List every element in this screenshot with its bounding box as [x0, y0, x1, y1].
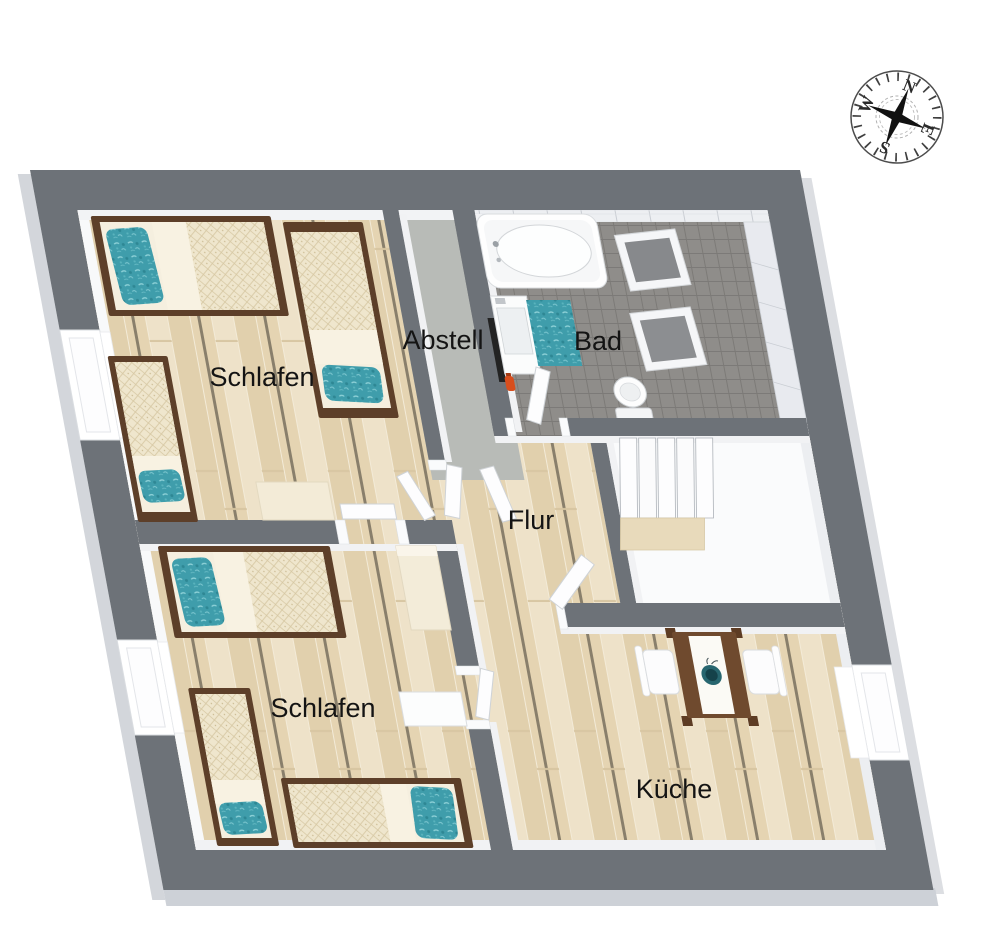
wall-bevel-bottom — [163, 888, 938, 906]
floor-plan-canvas: Schlafen Abstell Bad Flur Schlafen Küche… — [0, 0, 1000, 929]
pillow — [218, 801, 269, 835]
plan-skew-group — [17, 170, 946, 906]
room-label-schlafen-1: Schlafen — [209, 362, 314, 392]
wall-bedrooms-1 — [135, 520, 339, 544]
bed — [91, 216, 290, 316]
bed — [281, 778, 474, 848]
door-leaf — [340, 504, 397, 519]
floor-plan-drawing: Schlafen Abstell Bad Flur Schlafen Küche… — [0, 0, 1000, 929]
pillow — [321, 365, 384, 404]
pillow — [137, 469, 186, 503]
bedroom1-table — [256, 482, 335, 520]
compass-rose-icon: N E S W — [851, 71, 943, 163]
room-label-kueche: Küche — [636, 774, 713, 804]
room-label-abstell: Abstell — [402, 325, 483, 355]
bathtub — [475, 214, 609, 288]
stair-landing — [614, 518, 710, 550]
room-label-flur: Flur — [508, 505, 555, 535]
door-leaf — [444, 464, 462, 518]
pillow — [410, 786, 459, 840]
room-label-bad: Bad — [574, 326, 622, 356]
wall-flur-kueche — [555, 603, 844, 627]
room-label-schlafen-2: Schlafen — [270, 693, 375, 723]
wall-bad-south — [561, 418, 809, 436]
dresser — [399, 692, 467, 726]
bed — [158, 546, 347, 638]
